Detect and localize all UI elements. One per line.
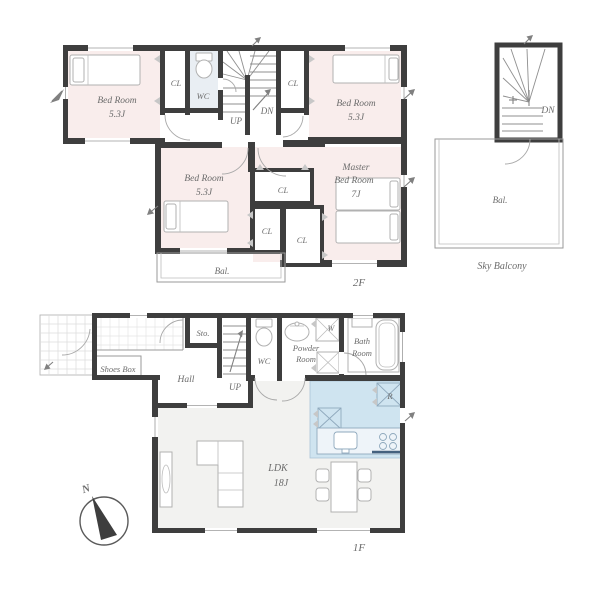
label-ldk-size: 18J xyxy=(274,478,289,489)
label-closet-c: CL xyxy=(278,185,289,195)
room-label-master-1: Master xyxy=(342,163,370,173)
first-floor-plan: Shoes Box Hall Sto. UP WC Powder Room W … xyxy=(40,313,415,554)
bed-nw xyxy=(70,55,140,85)
label-balcony-sky: Bal. xyxy=(493,195,508,205)
beds-master xyxy=(336,178,400,243)
label-wc-2f: WC xyxy=(197,91,210,101)
bed-mid xyxy=(164,201,228,232)
label-bath-1: Bath xyxy=(354,336,370,346)
label-hall: Hall xyxy=(177,375,195,385)
floor-plan-drawing: Bed Room 5.3J Bed Room 5.3J Bed Room 5.3… xyxy=(0,0,600,591)
label-closet-a: CL xyxy=(171,78,182,88)
sky-balcony-deck xyxy=(435,139,563,248)
compass-needle-icon xyxy=(92,496,117,540)
compass-north-label: N xyxy=(79,482,92,497)
label-powder-2: Room xyxy=(295,354,316,364)
sky-balcony-plan: DN Bal. Sky Balcony xyxy=(435,35,563,272)
floor-plan-page: Bed Room 5.3J Bed Room 5.3J Bed Room 5.3… xyxy=(0,0,600,591)
room-label-bedroom-ne: Bed Room xyxy=(336,99,375,109)
sink-icon-powder xyxy=(285,322,309,341)
label-fridge: R xyxy=(386,391,393,401)
toilet-icon-1f xyxy=(256,319,272,346)
room-size-bedroom-mid: 5.3J xyxy=(196,188,213,198)
label-dn-2f: DN xyxy=(260,106,274,116)
room-size-master: 7J xyxy=(352,190,362,200)
label-wc-1f: WC xyxy=(258,356,271,366)
toilet-icon-2f xyxy=(196,53,212,78)
label-balcony-2f: Bal. xyxy=(215,266,230,276)
room-label-master-2: Bed Room xyxy=(334,176,373,186)
label-closet-e: CL xyxy=(297,235,308,245)
label-bath-2: Room xyxy=(351,348,372,358)
floor-label-1f: 1F xyxy=(353,542,366,554)
label-up-1f: UP xyxy=(229,382,241,392)
label-dn-sky: DN xyxy=(540,106,555,116)
label-sky-balcony: Sky Balcony xyxy=(477,261,527,272)
bed-ne xyxy=(333,55,399,83)
back-door-arrow-icon xyxy=(405,412,415,421)
room-size-bedroom-ne: 5.3J xyxy=(348,113,365,123)
label-closet-d: CL xyxy=(262,226,273,236)
entrance-porch xyxy=(40,315,93,375)
second-floor-plan: Bed Room 5.3J Bed Room 5.3J Bed Room 5.3… xyxy=(50,37,415,289)
staircase-1f xyxy=(223,326,246,374)
label-up-2f: UP xyxy=(230,116,242,126)
floor-label-2f: 2F xyxy=(353,277,366,289)
compass: N xyxy=(79,482,128,545)
room-label-bedroom-mid: Bed Room xyxy=(184,174,223,184)
room-label-bedroom-nw: Bed Room xyxy=(97,96,136,106)
tv-board xyxy=(160,452,172,507)
label-storage: Sto. xyxy=(197,328,210,338)
label-powder-1: Powder xyxy=(292,343,320,353)
label-shoes-box: Shoes Box xyxy=(100,364,135,374)
genkan-tiles xyxy=(97,318,183,350)
kitchen-counter xyxy=(317,428,402,454)
room-size-bedroom-nw: 5.3J xyxy=(109,110,126,120)
bedroom-mid-floor xyxy=(161,147,250,249)
label-closet-b: CL xyxy=(288,78,299,88)
label-ldk: LDK xyxy=(267,463,289,474)
